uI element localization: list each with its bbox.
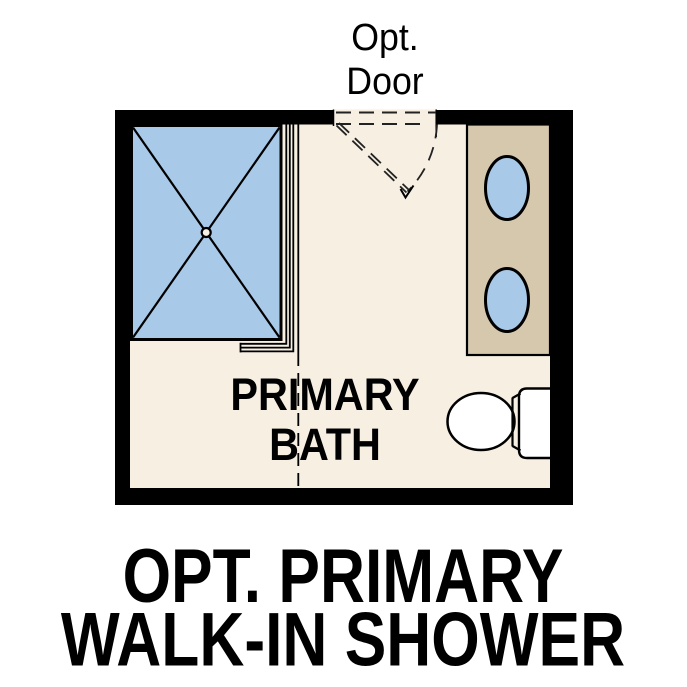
sink-bottom — [486, 269, 529, 332]
shower — [132, 126, 282, 340]
room-label-line1: PRIMARY — [230, 370, 419, 420]
caption: OPT. PRIMARY WALK-IN SHOWER — [61, 533, 625, 682]
toilet-tank — [519, 389, 550, 459]
sink-top — [486, 157, 529, 220]
floor-plan-drawing: Opt. Door PRIMARY BATH OPT. PRIMARY WALK… — [0, 0, 687, 687]
door-label: Opt. Door — [346, 16, 423, 102]
room-label-line2: BATH — [269, 420, 381, 470]
caption-line2: WALK-IN SHOWER — [61, 597, 625, 682]
door-label-line2: Door — [346, 60, 423, 102]
floor-plan: Opt. Door PRIMARY BATH OPT. PRIMARY WALK… — [0, 0, 687, 687]
vanity-counter — [467, 125, 550, 356]
door-label-line1: Opt. — [351, 16, 418, 58]
toilet-bowl — [448, 393, 515, 450]
shower-drain — [202, 228, 211, 237]
